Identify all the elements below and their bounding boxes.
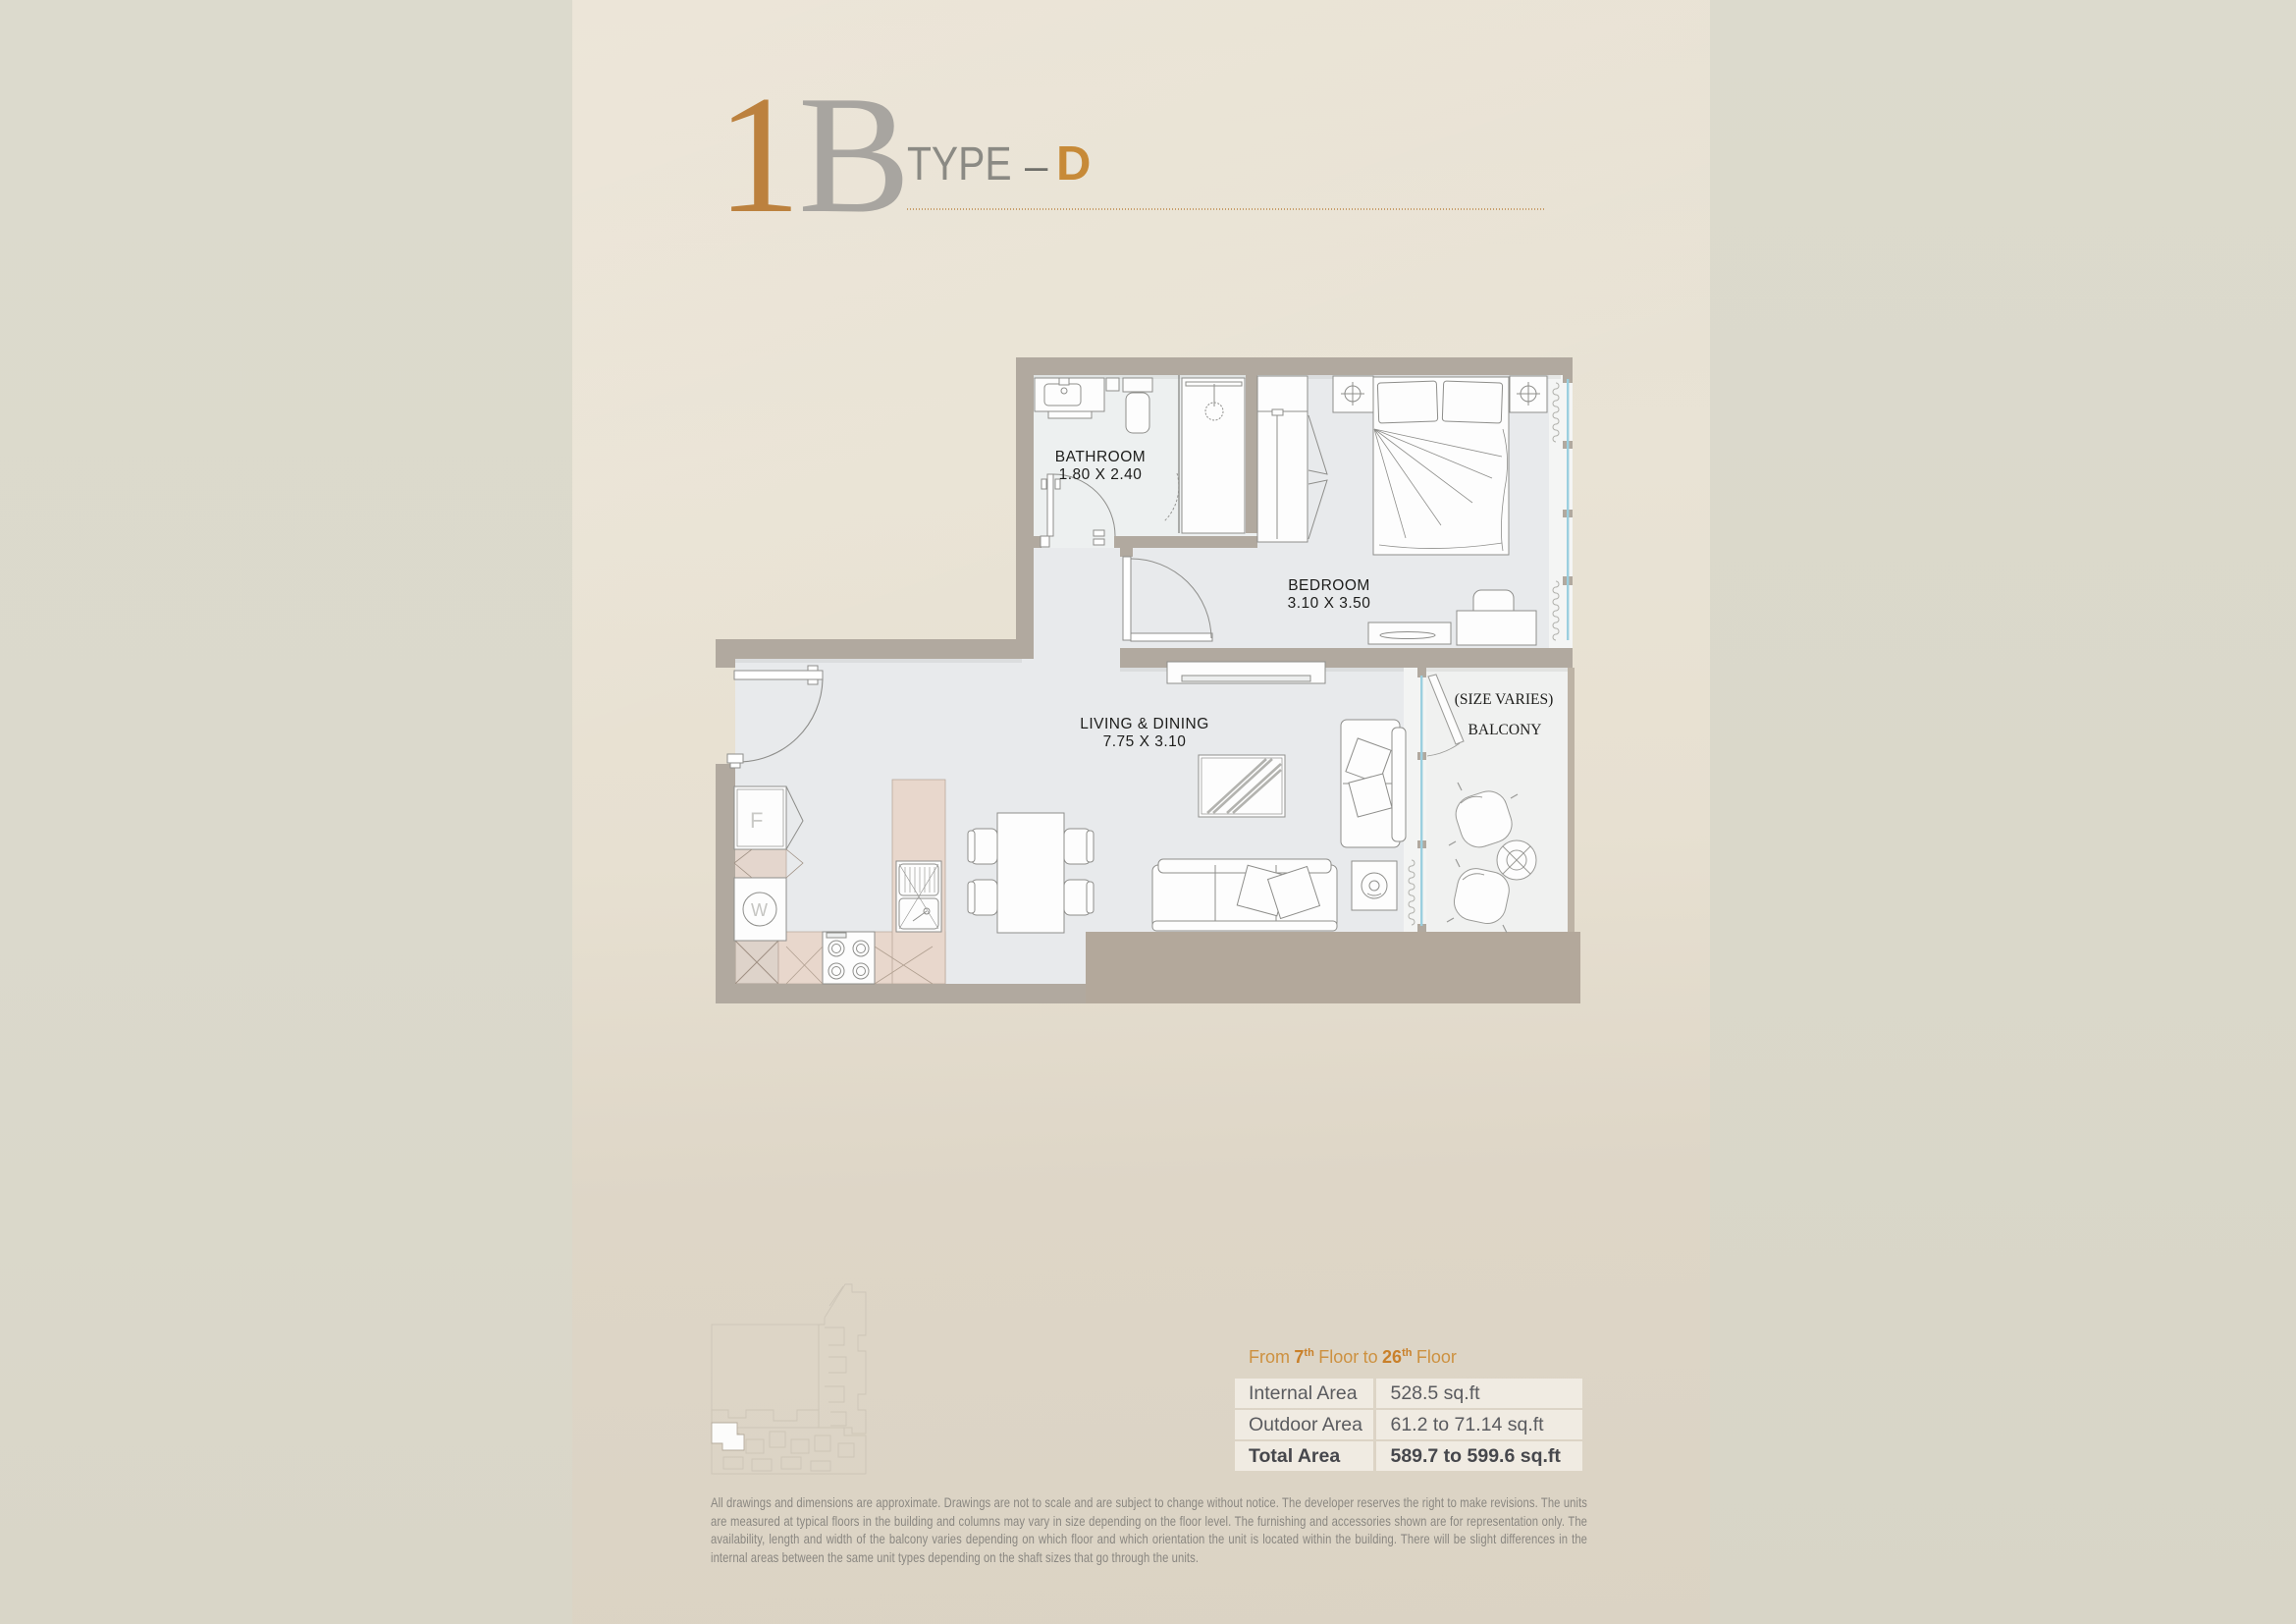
- svg-text:W: W: [751, 900, 768, 920]
- svg-text:LIVING & DINING: LIVING & DINING: [1080, 716, 1209, 732]
- svg-text:7.75 X 3.10: 7.75 X 3.10: [1103, 733, 1187, 750]
- svg-text:BALCONY: BALCONY: [1468, 722, 1542, 738]
- svg-text:1.80 X 2.40: 1.80 X 2.40: [1059, 466, 1143, 483]
- svg-text:BATHROOM: BATHROOM: [1055, 449, 1146, 465]
- svg-text:(SIZE VARIES): (SIZE VARIES): [1455, 691, 1554, 708]
- svg-text:F: F: [750, 808, 763, 833]
- svg-text:BEDROOM: BEDROOM: [1288, 577, 1370, 594]
- svg-text:3.10 X 3.50: 3.10 X 3.50: [1288, 595, 1371, 612]
